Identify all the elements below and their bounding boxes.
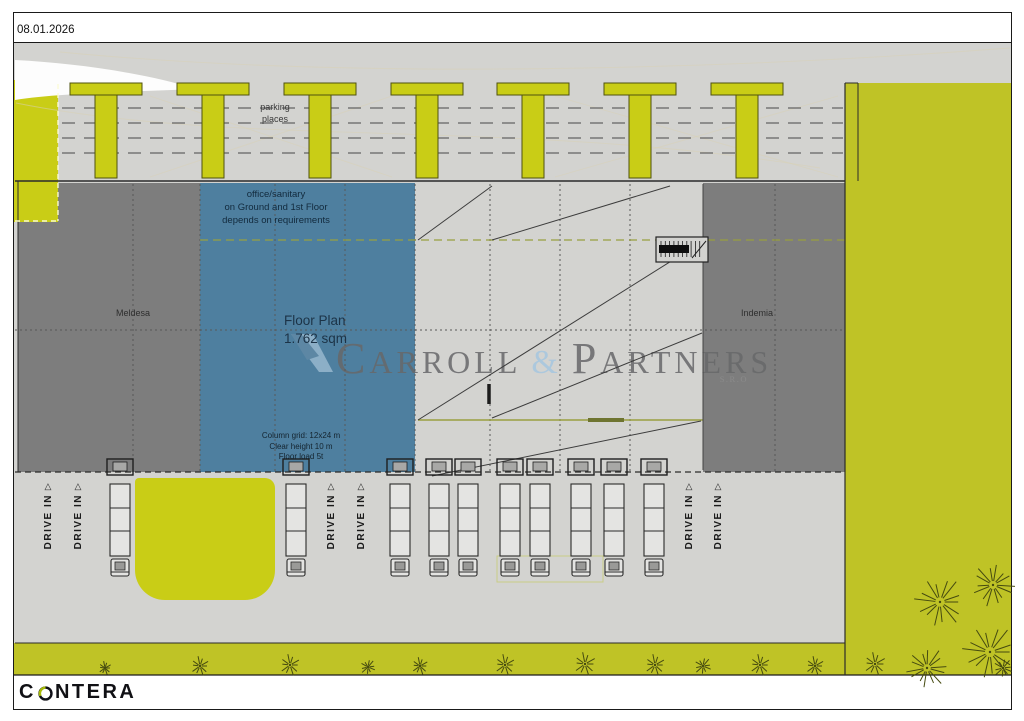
office-note-line3: depends on requirements bbox=[203, 214, 349, 227]
floor-plan-area: 1.762 sqm bbox=[284, 330, 347, 348]
tree-icon bbox=[914, 581, 959, 625]
tenant-label-meldesa: Meldesa bbox=[83, 308, 183, 318]
logo-letter-c: C bbox=[19, 681, 36, 704]
site-plan-drawing: CARROLL&PARTNERS S.R.O bbox=[0, 0, 1024, 721]
truck bbox=[458, 484, 478, 576]
drive-in-marker: △ DRIVE IN bbox=[322, 482, 340, 549]
arrow-up-icon: △ bbox=[715, 482, 722, 491]
parking-label: parking places bbox=[241, 101, 309, 125]
drive-in-label: DRIVE IN bbox=[326, 494, 337, 549]
parking-island bbox=[391, 83, 463, 178]
spec-clear-height: Clear height 10 m bbox=[240, 442, 362, 453]
date-label: 08.01.2026 bbox=[17, 24, 75, 36]
truck bbox=[500, 484, 520, 576]
plan-linework bbox=[0, 0, 1024, 721]
arrow-up-icon: △ bbox=[686, 482, 693, 491]
truck bbox=[429, 484, 449, 576]
truck bbox=[530, 484, 550, 576]
truck bbox=[604, 484, 624, 576]
spec-floor-load: Floor load 5t bbox=[240, 452, 362, 463]
tree-icon bbox=[576, 652, 595, 675]
drive-in-marker: △ DRIVE IN bbox=[680, 482, 698, 549]
grid-lines bbox=[15, 184, 845, 471]
drive-in-marker: △ DRIVE IN bbox=[709, 482, 727, 549]
parking-dashes bbox=[62, 108, 843, 153]
arrow-up-icon: △ bbox=[75, 482, 82, 491]
tree-icon bbox=[193, 656, 209, 675]
tree-icon bbox=[362, 660, 375, 673]
parking-island bbox=[604, 83, 676, 178]
tree-icon bbox=[866, 652, 885, 675]
arrow-up-icon: △ bbox=[328, 482, 335, 491]
tree-icon bbox=[974, 565, 1015, 606]
spec-column-grid: Column grid: 12x24 m bbox=[240, 431, 362, 442]
drive-in-marker: △ DRIVE IN bbox=[69, 482, 87, 549]
tree-icon bbox=[752, 654, 769, 675]
truck bbox=[571, 484, 591, 576]
tree-icon bbox=[906, 650, 946, 687]
logo-o-ring-icon bbox=[37, 685, 54, 702]
tree-icon bbox=[696, 658, 711, 673]
tree-icon bbox=[282, 654, 299, 675]
trees bbox=[100, 565, 1015, 687]
drive-in-label: DRIVE IN bbox=[684, 494, 695, 549]
parking-label-line2: places bbox=[241, 113, 309, 125]
tree-icon bbox=[808, 656, 824, 675]
truck bbox=[390, 484, 410, 576]
tree-icon bbox=[413, 657, 427, 674]
contera-logo: C NTERA bbox=[19, 681, 136, 704]
floor-plan-title: Floor Plan bbox=[284, 312, 347, 330]
truck bbox=[286, 484, 306, 576]
drive-in-label: DRIVE IN bbox=[713, 494, 724, 549]
office-note-line2: on Ground and 1st Floor bbox=[203, 201, 349, 214]
tree-icon bbox=[995, 660, 1012, 677]
drive-in-marker: △ DRIVE IN bbox=[352, 482, 370, 549]
truck bbox=[110, 484, 130, 576]
parking-island bbox=[177, 83, 249, 178]
drive-in-label: DRIVE IN bbox=[356, 494, 367, 549]
parking-label-line1: parking bbox=[241, 101, 309, 113]
floor-plan-label: Floor Plan 1.762 sqm bbox=[284, 312, 347, 348]
parking-island bbox=[70, 83, 142, 178]
arrow-up-icon: △ bbox=[45, 482, 52, 491]
stair-symbol bbox=[656, 237, 708, 262]
dock-door bbox=[601, 459, 627, 475]
truck bbox=[644, 484, 664, 576]
office-note: office/sanitary on Ground and 1st Floor … bbox=[203, 188, 349, 227]
drive-in-label: DRIVE IN bbox=[73, 494, 84, 549]
arrow-up-icon: △ bbox=[358, 482, 365, 491]
dock-door bbox=[641, 459, 667, 475]
logo-letters-ntera: NTERA bbox=[55, 681, 136, 704]
parking-island bbox=[711, 83, 783, 178]
trucks bbox=[110, 484, 664, 576]
office-note-line1: office/sanitary bbox=[203, 188, 349, 201]
drive-in-marker: △ DRIVE IN bbox=[39, 482, 57, 549]
tree-icon bbox=[647, 654, 664, 675]
tree-icon bbox=[497, 654, 514, 675]
specs-label: Column grid: 12x24 m Clear height 10 m F… bbox=[240, 431, 362, 463]
tenant-label-indemia: Indemia bbox=[707, 308, 807, 318]
tree-icon bbox=[100, 661, 111, 675]
drive-in-label: DRIVE IN bbox=[43, 494, 54, 549]
